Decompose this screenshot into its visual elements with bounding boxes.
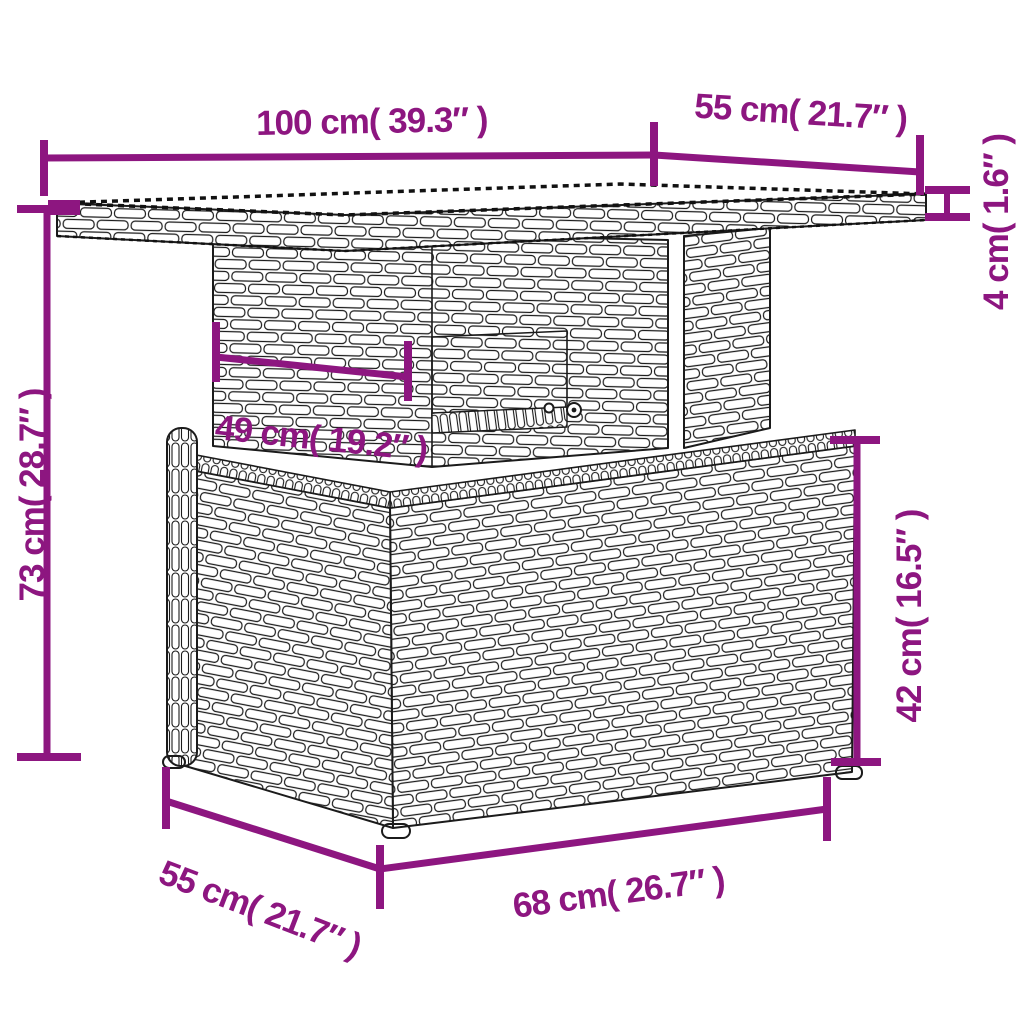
dim-line-tabletop-width <box>41 155 654 158</box>
dimension-tabletop-depth: 55 cm( 21.7″ ) <box>654 87 920 195</box>
product-dimension-diagram: 100 cm( 39.3″ ) 55 cm( 21.7″ ) 4 cm( 1.6… <box>0 0 1024 1024</box>
dimension-tabletop-width: 100 cm( 39.3″ ) <box>41 100 654 196</box>
table-base <box>163 428 862 838</box>
dim-label-tabletop-thickness: 4 cm( 1.6″ ) <box>977 134 1016 310</box>
table-illustration <box>57 184 926 838</box>
dimension-tabletop-thickness: 4 cm( 1.6″ ) <box>925 134 1016 310</box>
dim-label-tabletop-depth: 55 cm( 21.7″ ) <box>693 87 908 139</box>
dim-label-base-height: 42 cm( 16.5″ ) <box>890 510 929 723</box>
pedestal-side-column <box>684 228 770 448</box>
tabletop <box>57 184 926 251</box>
dim-label-total-height: 73 cm( 28.7″ ) <box>13 389 52 602</box>
base-left-face <box>170 466 393 828</box>
pedestal-knob-ring-center <box>572 408 577 413</box>
dim-line-tabletop-depth <box>654 155 920 172</box>
base-corner-post <box>167 428 197 766</box>
dim-label-base-depth: 55 cm( 21.7″ ) <box>154 853 367 966</box>
pedestal-knob-small <box>545 404 554 413</box>
dimension-total-height: 73 cm( 28.7″ ) <box>13 200 81 757</box>
dim-label-base-width: 68 cm( 26.7″ ) <box>510 859 726 925</box>
base-right-face <box>390 446 855 828</box>
dim-label-tabletop-width: 100 cm( 39.3″ ) <box>256 100 488 143</box>
diagram-canvas: 100 cm( 39.3″ ) 55 cm( 21.7″ ) 4 cm( 1.6… <box>0 0 1024 1024</box>
